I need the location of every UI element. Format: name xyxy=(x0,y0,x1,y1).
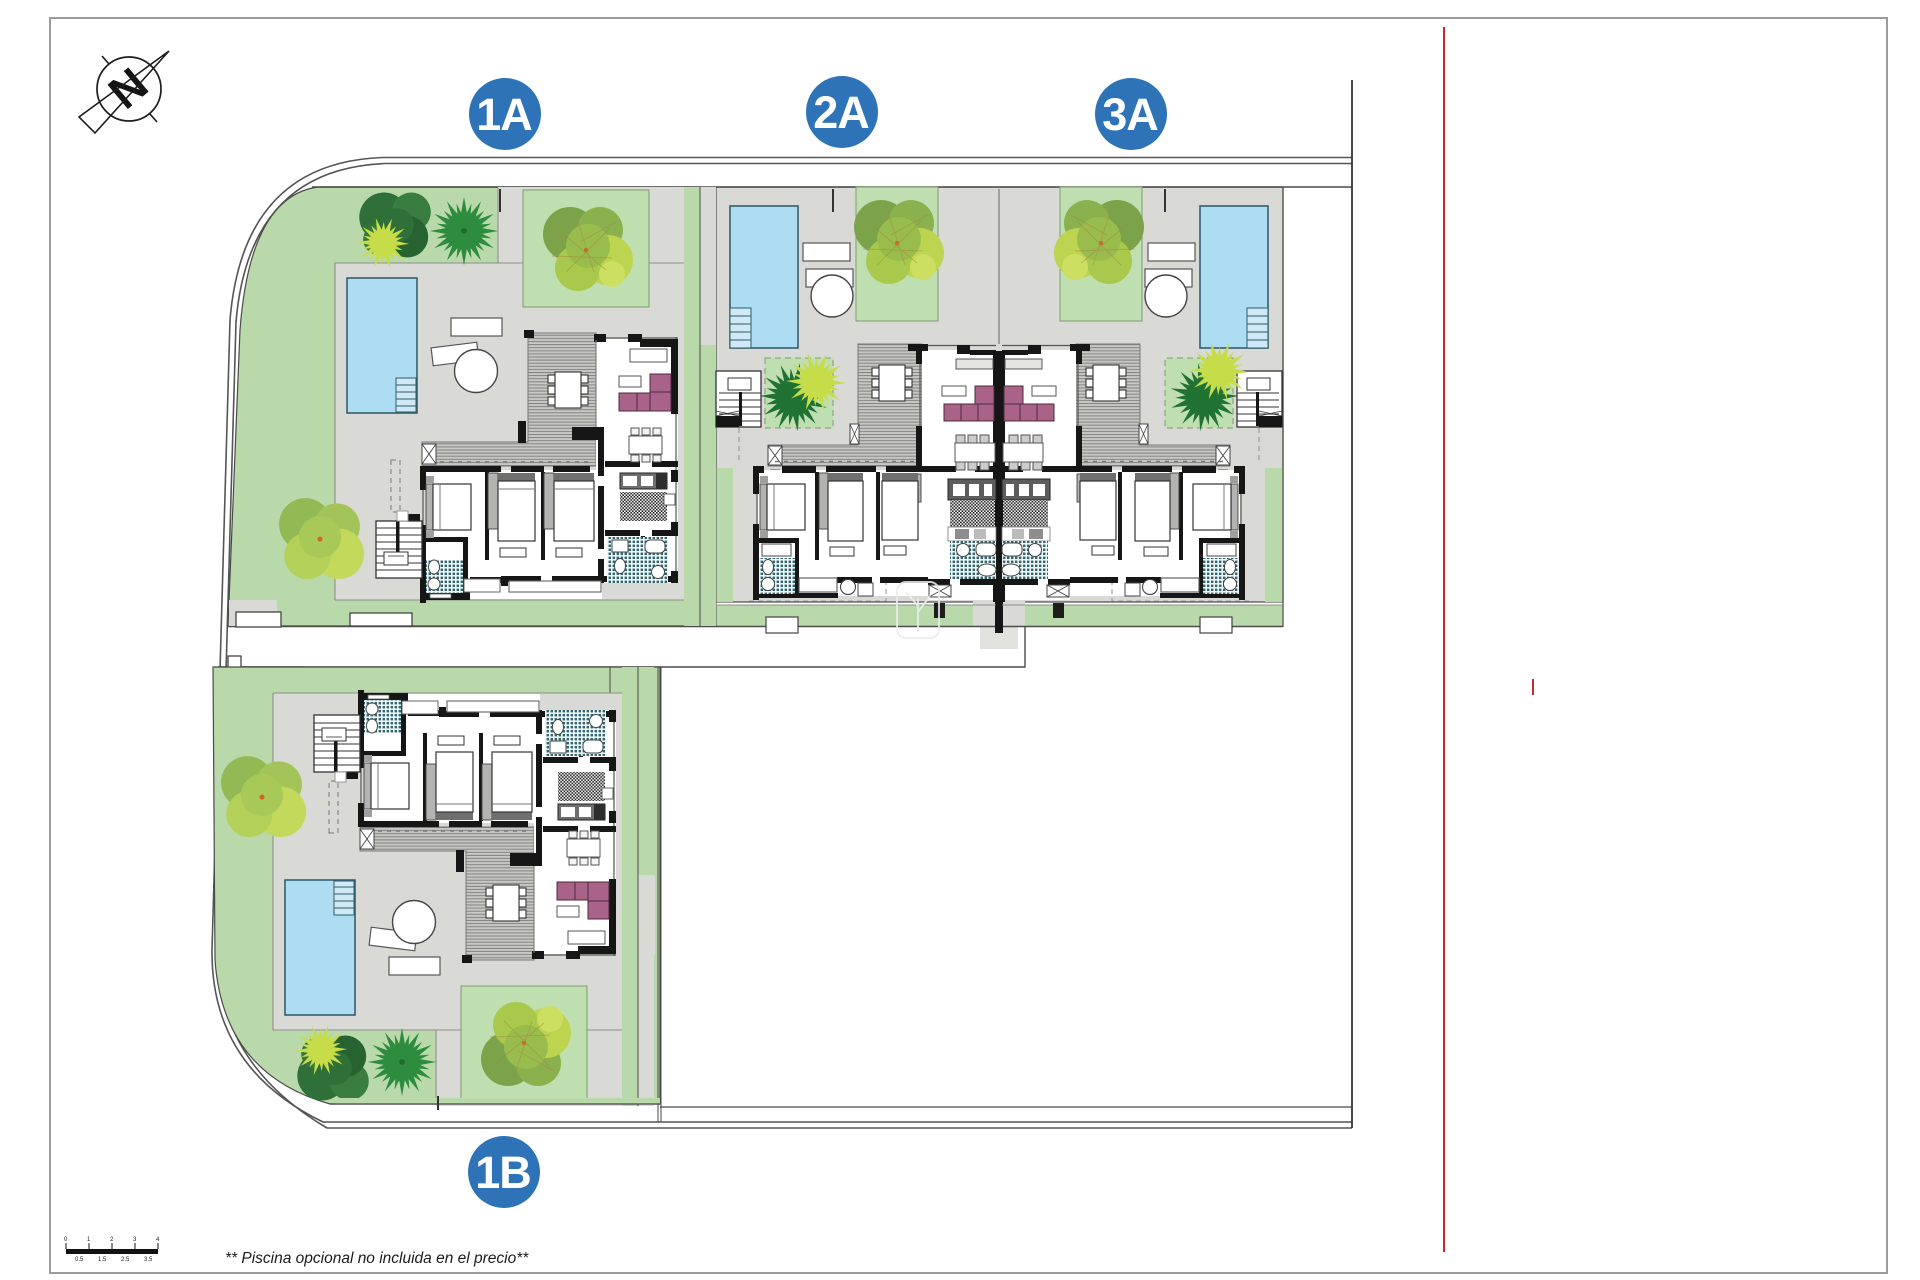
svg-text:1B: 1B xyxy=(475,1147,531,1198)
svg-text:3A: 3A xyxy=(1102,89,1158,140)
svg-text:1.5: 1.5 xyxy=(98,1257,107,1263)
svg-text:1A: 1A xyxy=(476,89,532,140)
svg-text:** Piscina opcional no incluid: ** Piscina opcional no incluida en el pr… xyxy=(225,1250,529,1267)
svg-text:2A: 2A xyxy=(813,87,869,138)
svg-text:2.5: 2.5 xyxy=(121,1257,130,1263)
svg-text:3.5: 3.5 xyxy=(144,1257,153,1263)
svg-text:0.5: 0.5 xyxy=(75,1257,84,1263)
